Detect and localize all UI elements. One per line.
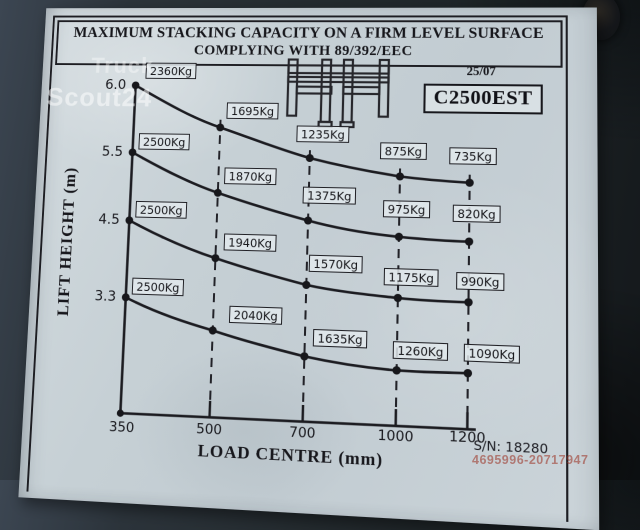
capacity-label: 975Kg <box>383 200 430 218</box>
capacity-label: 2500Kg <box>132 278 185 297</box>
x-tick-label: 1000 <box>370 427 421 446</box>
y-tick-label: 4.5 <box>85 212 120 228</box>
capacity-label: 2040Kg <box>229 306 283 325</box>
watermark-photo-id: 4695996-20717947 <box>472 453 588 467</box>
curve-3.3m <box>123 297 469 373</box>
x-tick-label: 700 <box>278 424 328 443</box>
capacity-label: 1175Kg <box>384 268 439 287</box>
capacity-label: 2500Kg <box>138 133 190 150</box>
curve-5.5m <box>129 152 470 241</box>
watermark-scout24: Scout24 <box>46 83 153 113</box>
capacity-label: 1635Kg <box>313 329 368 348</box>
capacity-label: 1870Kg <box>224 167 277 185</box>
capacity-label: 1235Kg <box>296 125 349 142</box>
capacity-label: 1260Kg <box>393 341 449 361</box>
watermark-truck: Truck <box>91 53 155 79</box>
capacity-label: 1695Kg <box>226 102 278 119</box>
capacity-label: 820Kg <box>453 205 501 223</box>
x-axis-ticks <box>210 401 468 429</box>
capacity-label: 990Kg <box>456 272 504 291</box>
capacity-label: 1570Kg <box>309 255 363 274</box>
photo-of-capacity-plate: { "plate": { "title_line1": "MAXIMUM STA… <box>0 0 640 480</box>
x-tick-label: 500 <box>185 420 234 439</box>
capacity-label: 735Kg <box>449 147 496 165</box>
capacity-label: 1940Kg <box>224 233 277 251</box>
capacity-label: 1090Kg <box>464 344 520 364</box>
capacity-plate: MAXIMUM STACKING CAPACITY ON A FIRM LEVE… <box>18 7 599 530</box>
capacity-label: 1375Kg <box>303 187 357 205</box>
y-tick-label: 5.5 <box>88 144 123 160</box>
x-tick-label: 350 <box>98 418 146 437</box>
capacity-label: 875Kg <box>380 142 427 160</box>
y-tick-label: 3.3 <box>81 288 116 305</box>
capacity-label: 2500Kg <box>135 201 187 219</box>
